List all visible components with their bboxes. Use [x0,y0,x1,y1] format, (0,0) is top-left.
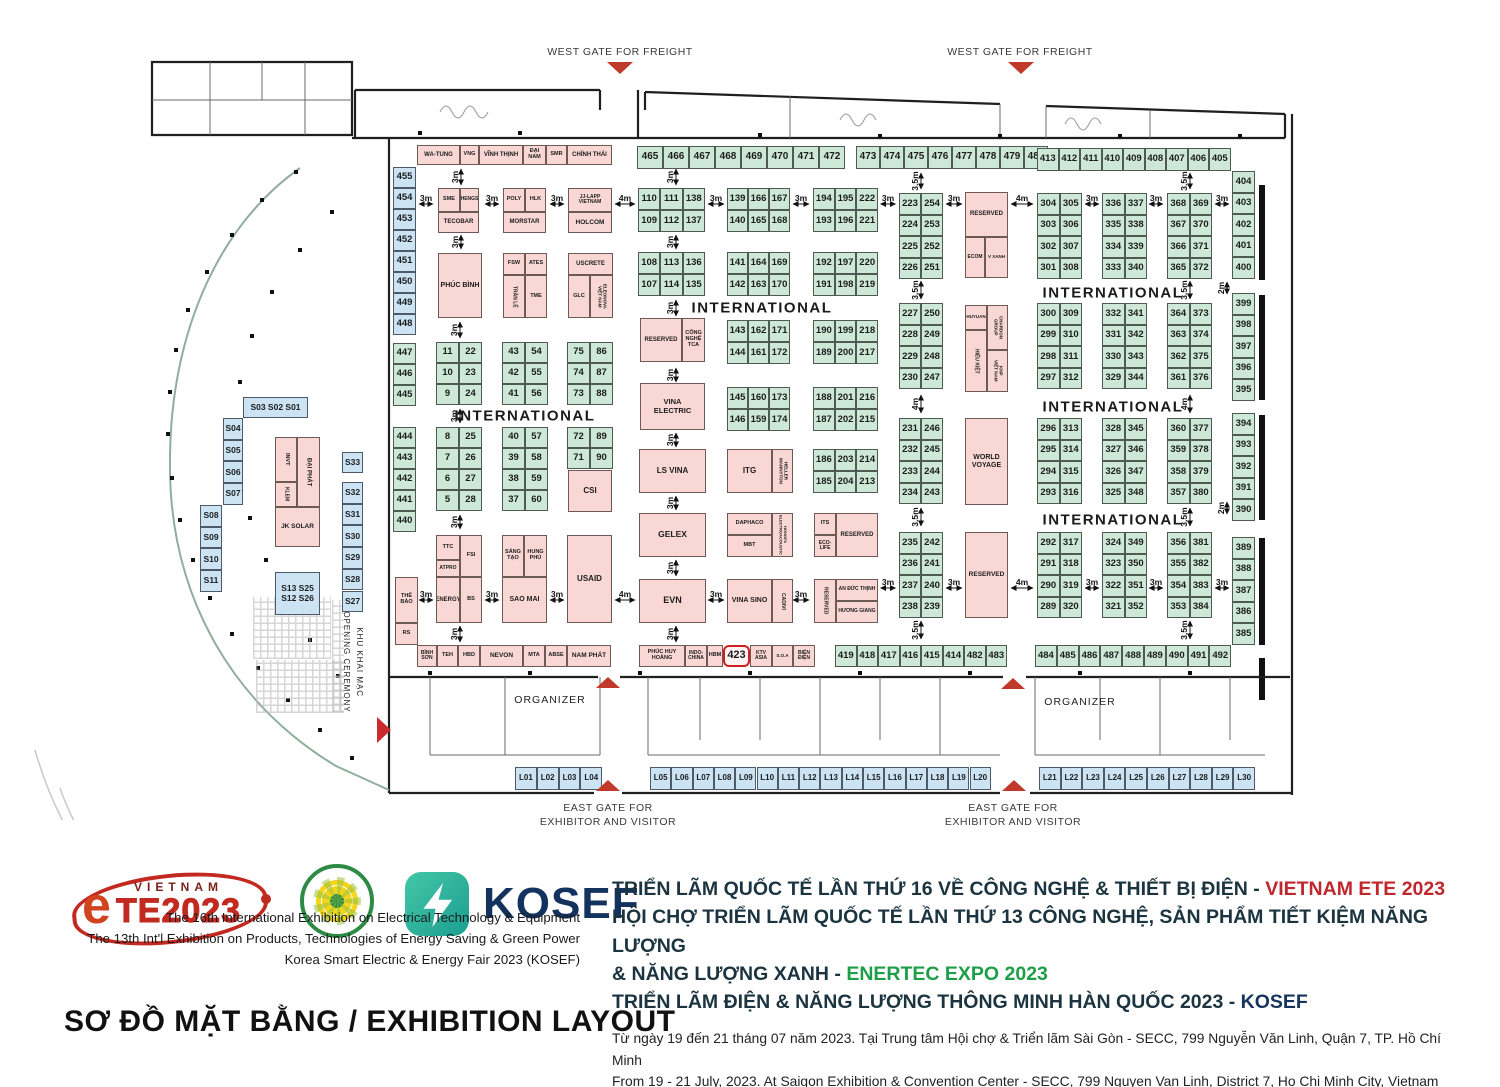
booth-112: 112 [660,210,682,232]
booth-298: 298 [1037,346,1060,368]
booth-l30: L30 [1233,767,1255,790]
booth-411: 411 [1080,148,1102,171]
booth-311: 311 [1060,346,1083,368]
svg-text:3m: 3m [486,589,499,599]
booth-378: 378 [1190,440,1213,462]
booth-hlk: HLK [525,188,546,212]
svg-text:4m: 4m [619,193,632,203]
booth-l28: L28 [1190,767,1212,790]
booth-328: 328 [1102,418,1125,440]
booth-325: 325 [1102,483,1125,505]
booth-337: 337 [1125,193,1148,215]
svg-text:3.5m: 3.5m [1179,171,1189,191]
booth-324: 324 [1102,532,1125,554]
booth-200: 200 [835,342,857,364]
booth-138: 138 [683,188,705,210]
booth-146: 146 [727,409,748,431]
booth-v-nh-th-nh: VĨNH THỊNH [479,145,523,165]
booth-160: 160 [748,387,769,409]
international-label: INTERNATIONAL [1043,399,1184,416]
gate-arrow-down [1008,62,1034,74]
booth-290: 290 [1037,575,1060,597]
booth-186: 186 [813,449,835,471]
booth-482: 482 [964,645,986,667]
booth-380: 380 [1190,483,1213,505]
booth-361: 361 [1167,368,1190,390]
booth-60: 60 [525,490,548,511]
booth-199: 199 [835,320,857,342]
booth-484: 484 [1035,645,1057,667]
booth-ktv-asia: KTV ASIA [750,645,772,667]
booth-235: 235 [899,532,921,554]
booth-192: 192 [813,252,835,274]
booth-l10: L10 [757,767,778,790]
booth-139: 139 [727,188,748,210]
booth-tecobar: TECOBAR [438,212,479,233]
svg-text:3m: 3m [449,515,459,528]
booth-73: 73 [567,384,590,405]
booth-26: 26 [459,448,482,469]
svg-text:3m: 3m [710,589,723,599]
booth-319: 319 [1060,575,1083,597]
booth-28: 28 [459,490,482,511]
booth-489: 489 [1144,645,1166,667]
english-line-2: The 13th Int'l Exhibition on Products, T… [60,929,580,950]
exhibition-layout-page: 3m3m3m4m3m3m3m3m4m3m3m3m3m3m3m4m3m3m3m3m… [0,0,1500,1087]
booth-23: 23 [459,363,482,384]
booth-468: 468 [715,146,741,169]
booth-384: 384 [1190,597,1213,619]
booth-110: 110 [638,188,660,210]
booth-ph-c-b-nh: PHÚC BÌNH [438,253,482,318]
booth-ch-nh-th-i: CHÍNH THÁI [567,145,612,165]
booth-397: 397 [1232,336,1255,358]
booth-487: 487 [1100,645,1122,667]
booth-l20: L20 [970,767,991,790]
english-subtitle: The 16th International Exhibition on Ele… [60,908,580,971]
booth-56: 56 [525,384,548,405]
booth-419: 419 [835,645,857,667]
booth-194: 194 [813,188,835,210]
floor-plan: 3m3m3m4m3m3m3m3m4m3m3m3m3m3m3m4m3m3m3m3m… [0,0,1500,820]
booth-143: 143 [727,320,748,342]
booth-s-ng-t-o: SÁNG TẠO [502,535,524,577]
international-label: INTERNATIONAL [1043,512,1184,529]
booth-301: 301 [1037,258,1060,280]
booth-l19: L19 [948,767,969,790]
booth-196: 196 [835,210,857,232]
booth-166: 166 [748,188,769,210]
booth-v-xanh: V XANH [985,237,1008,278]
booth-413: 413 [1037,148,1059,171]
booth-471: 471 [793,146,819,169]
booth-293: 293 [1037,483,1060,505]
booth-418: 418 [857,645,879,667]
booth-hung-ph: HUNG PHÚ [524,535,547,577]
booth-331: 331 [1102,325,1125,347]
booth-294: 294 [1037,461,1060,483]
booth-198: 198 [835,274,857,296]
booth-327: 327 [1102,440,1125,462]
booth-8: 8 [436,427,459,448]
booth-289: 289 [1037,597,1060,619]
booth-daphaco: DAPHACO [727,513,772,535]
booth-310: 310 [1060,325,1083,347]
booth-302: 302 [1037,236,1060,258]
booth-7: 7 [436,448,459,469]
booth-5: 5 [436,490,459,511]
booth-449: 449 [393,293,416,314]
booth-377: 377 [1190,418,1213,440]
booth-228: 228 [899,325,921,347]
booth-314: 314 [1060,440,1083,462]
svg-text:4m: 4m [910,397,920,410]
booth-reserved: RESERVED [836,513,878,557]
booth-145: 145 [727,387,748,409]
booth-reserved: RESERVED [965,532,1008,618]
booth-333: 333 [1102,258,1125,280]
booth-h-ng-giang: HƯƠNG GIANG [836,601,878,623]
booth-213: 213 [856,471,878,493]
booth-386: 386 [1232,602,1255,624]
booth-336: 336 [1102,193,1125,215]
booth-357: 357 [1167,483,1190,505]
booth-400: 400 [1232,257,1255,279]
booth-i-ph-t: ĐẠI PHÁT [297,437,320,507]
booth-mta: MTA [523,645,545,667]
gate-arrow-down [607,62,633,74]
booth-220: 220 [856,252,878,274]
booth-evn: EVN [639,579,706,623]
booth-245: 245 [921,440,943,462]
booth-396: 396 [1232,358,1255,380]
booth-37: 37 [502,490,525,511]
booth-466: 466 [663,146,689,169]
booth-399: 399 [1232,293,1255,315]
booth-itg: ITG [727,449,772,493]
booth-195: 195 [835,188,857,210]
svg-text:3m: 3m [665,235,675,248]
booth-27: 27 [459,469,482,490]
booth-41: 41 [502,384,525,405]
gate-arrow-up [1002,780,1026,791]
booth-224: 224 [899,215,921,237]
booth-cadivi: CADIVI [772,579,793,623]
booth-231: 231 [899,418,921,440]
booth-362: 362 [1167,346,1190,368]
booth-l22: L22 [1061,767,1083,790]
booth-341: 341 [1125,303,1148,325]
svg-text:3m: 3m [420,193,433,203]
booth-308: 308 [1060,258,1083,280]
svg-text:2m: 2m [1216,281,1226,294]
booth-353: 353 [1167,597,1190,619]
svg-text:3m: 3m [1216,577,1229,587]
booth-393: 393 [1232,435,1255,457]
booth-s06: S06 [223,461,243,483]
booth-190: 190 [813,320,835,342]
booth-403: 403 [1232,193,1255,215]
booth-morstar: MORSTAR [503,212,546,233]
booth-world-voyage: WORLD VOYAGE [965,418,1008,505]
booth-43: 43 [502,342,525,363]
booth-185: 185 [813,471,835,493]
booth-252: 252 [921,236,943,258]
booth-356: 356 [1167,532,1190,554]
page-title: SƠ ĐỒ MẶT BẰNG / EXHIBITION LAYOUT [64,1005,676,1039]
booth-57: 57 [525,427,548,448]
booth-491: 491 [1188,645,1210,667]
booth-226: 226 [899,258,921,280]
svg-text:3m: 3m [450,170,460,183]
booth-306: 306 [1060,215,1083,237]
booth-454: 454 [393,188,416,209]
booth-488: 488 [1122,645,1144,667]
booth-s07: S07 [223,483,243,505]
booth-l06: L06 [671,767,692,790]
booth-55: 55 [525,363,548,384]
english-line-3: Korea Smart Electric & Energy Fair 2023 … [60,950,580,971]
booth-329: 329 [1102,368,1125,390]
booth-huyuan: HUYUAN [965,305,987,330]
booth-354: 354 [1167,575,1190,597]
booth-71: 71 [567,448,590,469]
booth-l07: L07 [693,767,714,790]
booth-305: 305 [1060,193,1083,215]
svg-text:4m: 4m [1016,577,1029,587]
booth-323: 323 [1102,554,1125,576]
booth-321: 321 [1102,597,1125,619]
booth-nevon: NEVON [480,645,523,667]
venue-details: Từ ngày 19 đến 21 tháng 07 năm 2023. Tại… [612,1028,1462,1087]
booth-170: 170 [769,274,790,296]
booth-479: 479 [1000,146,1024,169]
booth-364: 364 [1167,303,1190,325]
booth-s33: S33 [342,452,363,473]
svg-text:3m: 3m [665,496,675,509]
booth-169: 169 [769,252,790,274]
event-line-3: TRIỂN LÃM ĐIỆN & NĂNG LƯỢNG THÔNG MINH H… [612,988,1462,1016]
gate-label: WEST GATE FOR FREIGHT [947,45,1092,59]
booth-295: 295 [1037,440,1060,462]
booth-s31: S31 [342,504,363,526]
booth-s13-s25-s12-s26: S13 S25 S12 S26 [275,572,320,615]
booth-246: 246 [921,418,943,440]
ete-logo-dot [261,894,271,904]
booth-hbm: HBM [707,645,723,667]
booth-373: 373 [1190,303,1213,325]
booth-219: 219 [856,274,878,296]
booth-197: 197 [835,252,857,274]
svg-text:3m: 3m [882,577,895,587]
booth-304: 304 [1037,193,1060,215]
seating-area [256,660,344,713]
booth-l29: L29 [1212,767,1234,790]
booth-ls-vina: LS VINA [639,449,706,493]
english-line-1: The 16th International Exhibition on Ele… [60,908,580,929]
booth-l24: L24 [1104,767,1126,790]
booth-109: 109 [638,210,660,232]
kosef-accent: KOSEF [1241,991,1308,1013]
booth-335: 335 [1102,215,1125,237]
booth-teh: TEH [437,645,458,667]
booth-383: 383 [1190,575,1213,597]
booth-th-b-o: THẾ BẢO [395,577,418,623]
booth-s03-s02-s01: S03 S02 S01 [243,397,308,418]
svg-text:3m: 3m [450,235,460,248]
booth-ttc: TTC [436,535,460,560]
booth-191: 191 [813,274,835,296]
booth-reserved: RESERVED [814,579,836,623]
booth-232: 232 [899,440,921,462]
booth-161: 161 [748,342,769,364]
booth-bs: BS [460,577,482,623]
booth-111: 111 [660,188,682,210]
event-line-2: HỘI CHỢ TRIỂN LÃM QUỐC TẾ LẦN THỨ 13 CÔN… [612,903,1462,960]
booth-168: 168 [769,210,790,232]
booth-s08: S08 [200,505,222,527]
booth-330: 330 [1102,346,1125,368]
event-line-2b: & NĂNG LƯỢNG XANH - ENERTEC EXPO 2023 [612,960,1462,988]
booth-137: 137 [683,210,705,232]
enertec-accent: ENERTEC EXPO 2023 [846,963,1048,985]
svg-text:3m: 3m [551,193,564,203]
booth-409: 409 [1123,148,1145,171]
international-label: INTERNATIONAL [455,408,596,425]
booth-25: 25 [459,427,482,448]
booth-360: 360 [1167,418,1190,440]
booth-440: 440 [393,511,416,532]
gate-arrow-right [377,717,391,743]
booth-241: 241 [921,554,943,576]
booth-189: 189 [813,342,835,364]
booth-fsw: FSW [503,253,525,275]
booth-s09: S09 [200,527,222,549]
booth-348: 348 [1125,483,1148,505]
svg-text:3m: 3m [486,193,499,203]
gate-arrow-up [596,677,620,688]
booth-326: 326 [1102,461,1125,483]
booth-l25: L25 [1125,767,1147,790]
booth-vng: VNG [460,145,479,165]
booth-163: 163 [748,274,769,296]
booth-344: 344 [1125,368,1148,390]
booth-58: 58 [525,448,548,469]
booth-l23: L23 [1082,767,1104,790]
booth-472: 472 [819,146,845,169]
booth-218: 218 [856,320,878,342]
booth-jj-lapp-vietnam: JJ-LAPP VIETNAM [568,188,612,212]
svg-text:3m: 3m [795,193,808,203]
booth-406: 406 [1188,148,1210,171]
booth-296: 296 [1037,418,1060,440]
booth-249: 249 [921,325,943,347]
booth-gelex: GELEX [639,513,706,557]
booth-140: 140 [727,210,748,232]
svg-text:3.5m: 3.5m [910,280,920,300]
svg-text:2m: 2m [1216,501,1226,514]
booth-390: 390 [1232,499,1255,521]
booth-171: 171 [769,320,790,342]
booth-475: 475 [904,146,928,169]
svg-text:3m: 3m [665,170,675,183]
booth-343: 343 [1125,346,1148,368]
booth-l13: L13 [820,767,841,790]
booth-412: 412 [1059,148,1081,171]
booth-144: 144 [727,342,748,364]
svg-text:3m: 3m [1086,577,1099,587]
booth-114: 114 [660,274,682,296]
booth-363: 363 [1167,325,1190,347]
booth-214: 214 [856,449,878,471]
booth-87: 87 [590,363,613,384]
footer: e VIETNAM TE2023 KOSEF The 16th Internat… [0,820,1500,1087]
booth-351: 351 [1125,575,1148,597]
booth-202: 202 [835,409,857,431]
booth-10: 10 [436,363,459,384]
booth-355: 355 [1167,554,1190,576]
booth-hengs: HENGS [460,188,479,212]
booth-atpro: ATPRO [436,560,460,577]
booth-303: 303 [1037,215,1060,237]
booth-rs: RS [395,623,418,645]
gate-arrow-up [1001,678,1025,689]
booth-347: 347 [1125,461,1148,483]
booth-54: 54 [525,342,548,363]
svg-text:3m: 3m [710,193,723,203]
booth-408: 408 [1145,148,1167,171]
booth-74: 74 [567,363,590,384]
booth-s05: S05 [223,440,243,462]
booth-s30: S30 [342,525,363,547]
booth-9: 9 [436,384,459,405]
booth-371: 371 [1190,236,1213,258]
svg-text:3m: 3m [665,433,675,446]
booth-405: 405 [1209,148,1231,171]
booth-b-nh-s-n: BÌNH SƠN [417,645,437,667]
booth-233: 233 [899,461,921,483]
svg-text:3m: 3m [1086,193,1099,203]
booth-38: 38 [502,469,525,490]
booth-227: 227 [899,303,921,325]
booth-222: 222 [856,188,878,210]
booth-invt: INVT [275,437,297,482]
booth-hbd: HBD [458,645,480,667]
booth-indo-china: INDO- CHINA [685,645,707,667]
booth-173: 173 [769,387,790,409]
booth-90: 90 [590,448,613,469]
booth-s28: S28 [342,569,363,591]
booth-s10: S10 [200,548,222,570]
international-label: INTERNATIONAL [692,300,833,317]
booth-193: 193 [813,210,835,232]
booth-reserved: RESERVED [640,318,682,362]
booth-474: 474 [880,146,904,169]
booth-313: 313 [1060,418,1083,440]
booth-bi-n-i-n: BIẾN ĐIỆN [793,645,815,667]
booth-242: 242 [921,532,943,554]
svg-text:3m: 3m [948,193,961,203]
booth-370: 370 [1190,215,1213,237]
booth-297: 297 [1037,368,1060,390]
booth-40: 40 [502,427,525,448]
booth-444: 444 [393,427,416,448]
booth-172: 172 [769,342,790,364]
booth-345: 345 [1125,418,1148,440]
booth-217: 217 [856,342,878,364]
booth-442: 442 [393,469,416,490]
booth-455: 455 [393,167,416,188]
